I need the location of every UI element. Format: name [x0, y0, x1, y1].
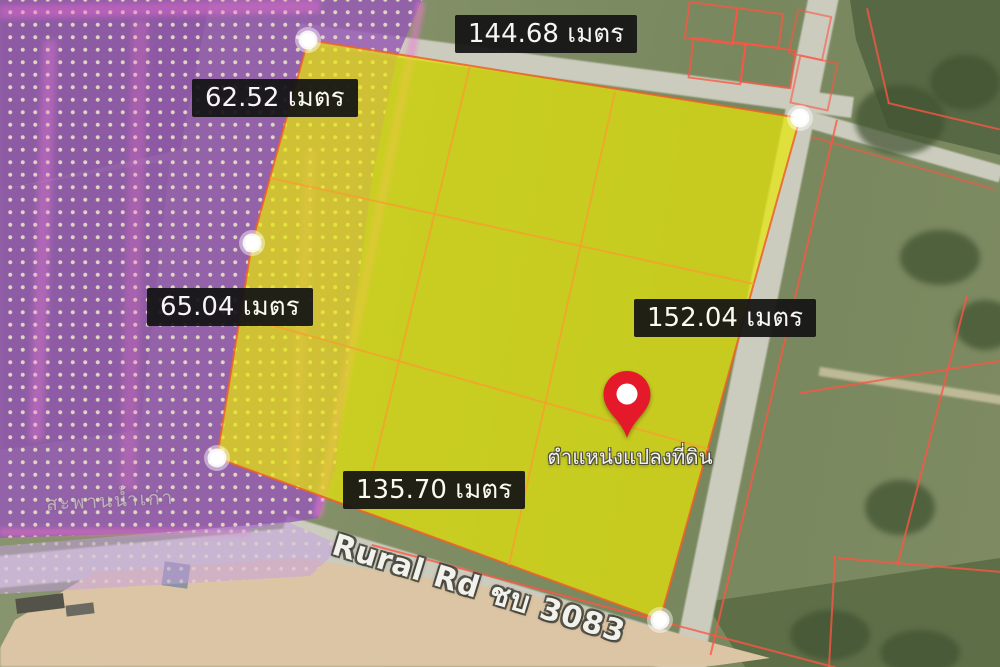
plot-overlay [0, 0, 1000, 667]
map-canvas[interactable]: 144.68 เมตร 62.52 เมตร 65.04 เมตร 152.04… [0, 0, 1000, 667]
vertex-marker[interactable] [787, 105, 813, 131]
location-pin[interactable] [600, 369, 654, 439]
measurement-label-bottom: 135.70 เมตร [343, 471, 525, 509]
pin-icon [600, 369, 654, 439]
measurement-label-lower-left: 65.04 เมตร [147, 288, 313, 326]
measurement-label-top: 144.68 เมตร [455, 15, 637, 53]
vertex-marker[interactable] [204, 445, 230, 471]
measurement-label-right: 152.04 เมตร [634, 299, 816, 337]
pin-caption: ตำแหน่งแปลงที่ดิน [518, 441, 742, 474]
vertex-marker[interactable] [295, 27, 321, 53]
vertex-marker[interactable] [239, 230, 265, 256]
measurement-label-upper-left: 62.52 เมตร [192, 79, 358, 117]
vertex-marker[interactable] [647, 607, 673, 633]
